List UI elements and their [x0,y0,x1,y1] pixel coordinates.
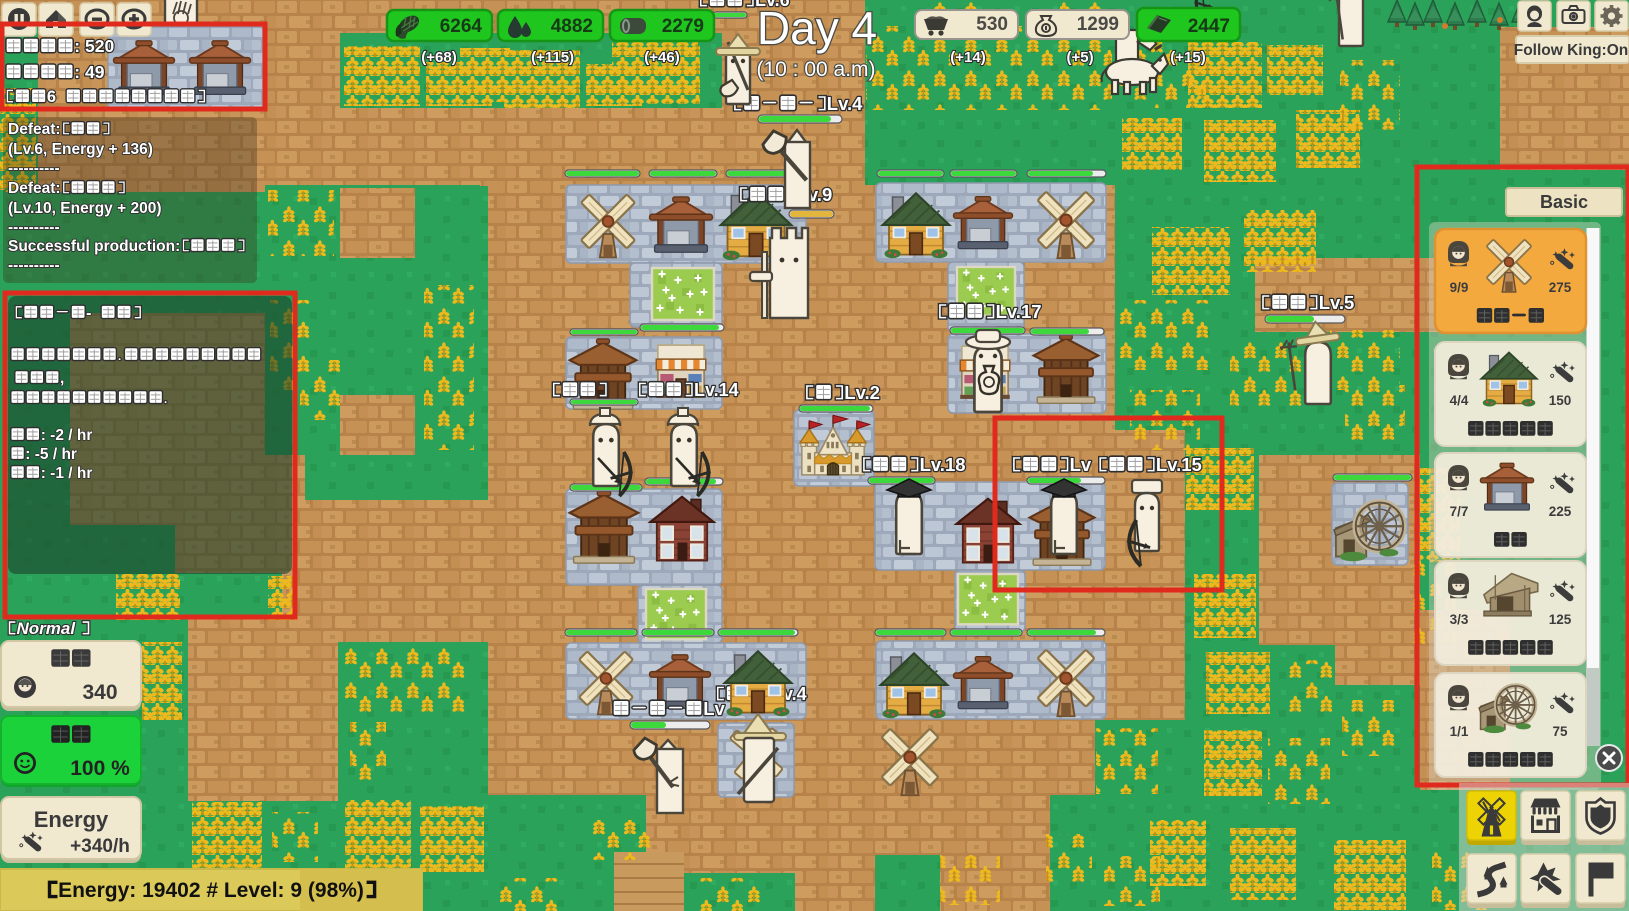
svg-text:Defeat:: Defeat: [8,121,61,138]
svg-text:Day 4: Day 4 [757,2,877,54]
svg-text:-: - [86,305,91,322]
svg-text:(Lv.6, Energy + 136): (Lv.6, Energy + 136) [8,141,153,158]
svg-text:4882: 4882 [551,16,593,37]
svg-text:Lv.15: Lv.15 [1156,454,1202,475]
svg-text:Normal: Normal [17,619,77,638]
svg-text:(+68): (+68) [421,49,456,66]
svg-text:Lv: Lv [1070,454,1092,475]
svg-text:340: 340 [82,681,117,704]
svg-text:6: 6 [47,88,56,106]
svg-text:Successful production:: Successful production: [8,238,180,255]
svg-text:75: 75 [1552,724,1568,739]
svg-text:6264: 6264 [440,16,483,37]
svg-text:225: 225 [1549,504,1572,519]
svg-text:Basic: Basic [1540,192,1588,212]
svg-text:(+46): (+46) [644,49,679,66]
svg-text:4/4: 4/4 [1450,393,1469,408]
svg-text:(+5): (+5) [1067,49,1094,66]
svg-text:----------: ---------- [8,160,60,177]
svg-text:530: 530 [976,14,1008,35]
svg-text:(+15): (+15) [1170,49,1205,66]
svg-text:: -2 / hr: : -2 / hr [41,427,93,444]
svg-text:,: , [60,370,64,387]
svg-text:Lv.5: Lv.5 [1319,292,1355,313]
svg-text:+340/h: +340/h [70,836,130,857]
svg-text:----------: ---------- [8,219,60,236]
svg-text:Energy: Energy [34,807,109,832]
svg-text:9/9: 9/9 [1450,280,1469,295]
svg-text:Lv.4: Lv.4 [827,93,863,114]
svg-text:125: 125 [1549,612,1572,627]
svg-text:Energy: 19402 # Level: 9 (98%): Energy: 19402 # Level: 9 (98%) [58,879,364,902]
svg-text:2447: 2447 [1188,16,1230,37]
svg-text:Lv.14: Lv.14 [694,380,739,400]
svg-text:Defeat:: Defeat: [8,180,61,197]
svg-text:1299: 1299 [1077,14,1119,35]
svg-text:Lv.18: Lv.18 [920,454,966,475]
svg-text:: -5 / hr: : -5 / hr [25,446,77,463]
svg-text:Lv: Lv [703,698,725,719]
svg-text:----------: ---------- [8,257,60,274]
svg-text:150: 150 [1549,393,1572,408]
svg-text:Follow King:On: Follow King:On [1514,42,1629,59]
svg-text:3/3: 3/3 [1450,612,1469,627]
svg-text:7/7: 7/7 [1450,504,1469,519]
svg-text:1/1: 1/1 [1450,724,1469,739]
svg-text:275: 275 [1549,280,1572,295]
svg-text:Lv.17: Lv.17 [996,301,1042,322]
svg-text:(10 : 00 a.m): (10 : 00 a.m) [756,58,875,81]
svg-text:(Lv.10, Energy + 200): (Lv.10, Energy + 200) [8,200,162,217]
svg-text:: 520: : 520 [74,36,114,56]
svg-text:(+14): (+14) [950,49,985,66]
svg-text:: 49: : 49 [74,62,104,82]
svg-text:Lv.2: Lv.2 [844,382,880,403]
svg-text:: -1 / hr: : -1 / hr [41,465,93,482]
svg-text:100 %: 100 % [70,757,130,780]
svg-text:2279: 2279 [662,16,704,37]
svg-text:(+115): (+115) [531,49,574,66]
